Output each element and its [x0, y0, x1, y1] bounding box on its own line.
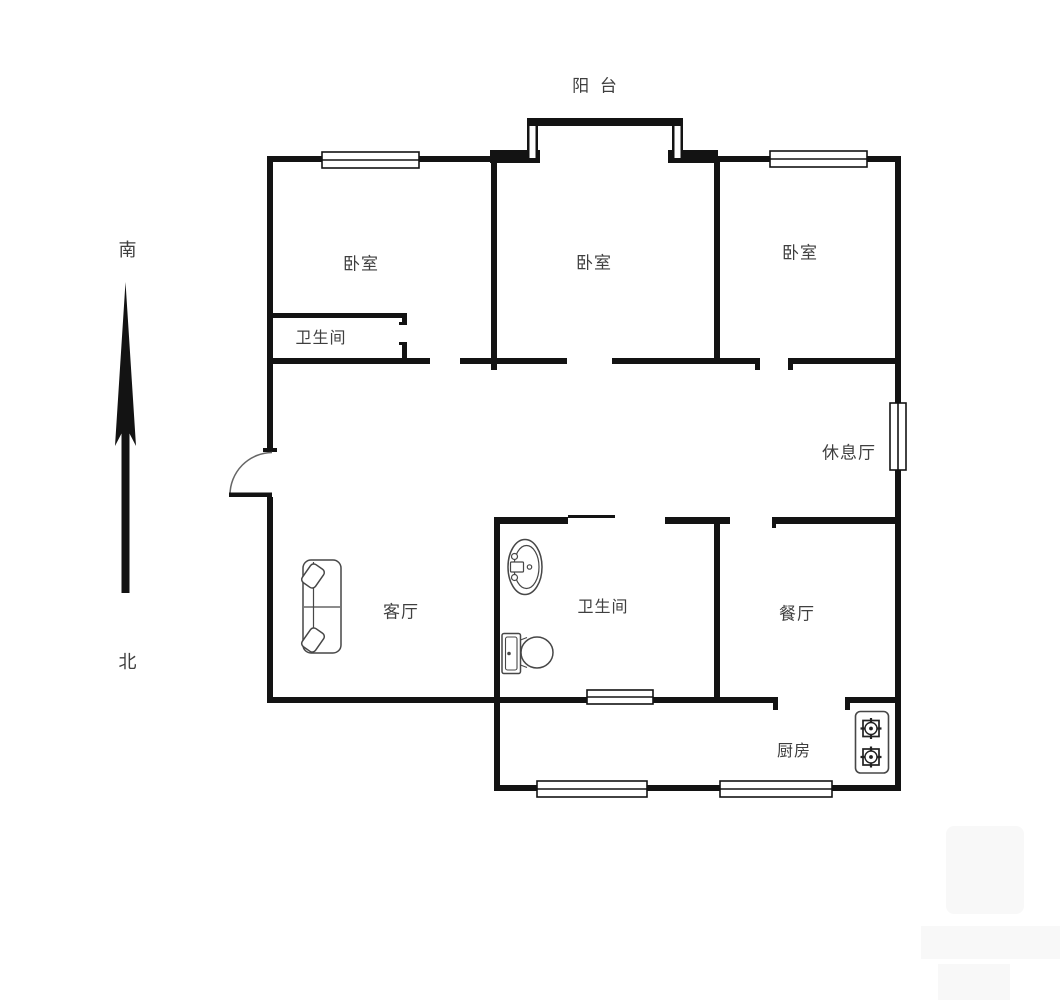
gas-stove — [856, 712, 889, 774]
stove-burner-bottom — [861, 747, 882, 768]
floor-plan-drawing — [0, 0, 1062, 1000]
floor-plan: 阳 台 卧室 卧室 卧室 卫生间 休息厅 客厅 卫生间 餐厅 厨房 南 北 — [0, 0, 1062, 1000]
room-label-bathroom-lower: 卫生间 — [577, 593, 628, 617]
window-bedroom-right — [770, 151, 867, 167]
room-label-living-room: 客厅 — [383, 598, 419, 623]
window-lounge — [890, 403, 906, 470]
stove-burner-top — [861, 718, 882, 739]
balcony-structure — [527, 118, 683, 162]
room-label-bedroom-middle: 卧室 — [576, 249, 612, 274]
watermark — [921, 826, 1060, 1000]
entry-door — [229, 453, 272, 498]
room-label-dining-room: 餐厅 — [779, 600, 815, 625]
room-label-balcony: 阳 台 — [572, 72, 620, 97]
window-bathroom-lower — [587, 690, 653, 704]
room-label-bedroom-right: 卧室 — [782, 239, 818, 264]
room-label-bedroom-left: 卧室 — [343, 250, 379, 275]
wash-basin — [508, 540, 542, 595]
window-bedroom-left — [322, 152, 419, 168]
room-label-lounge: 休息厅 — [822, 439, 876, 464]
compass-label-south: 南 — [119, 236, 138, 262]
sofa — [300, 560, 341, 654]
balcony-window-left — [530, 126, 536, 158]
window-kitchen-right — [720, 781, 832, 797]
balcony-window-right — [675, 126, 681, 158]
toilet — [502, 634, 553, 674]
room-label-kitchen: 厨房 — [777, 737, 811, 761]
window-kitchen-left — [537, 781, 647, 797]
compass-arrow — [115, 282, 136, 593]
compass-label-north: 北 — [119, 648, 138, 674]
room-label-bathroom-upper: 卫生间 — [295, 324, 346, 348]
